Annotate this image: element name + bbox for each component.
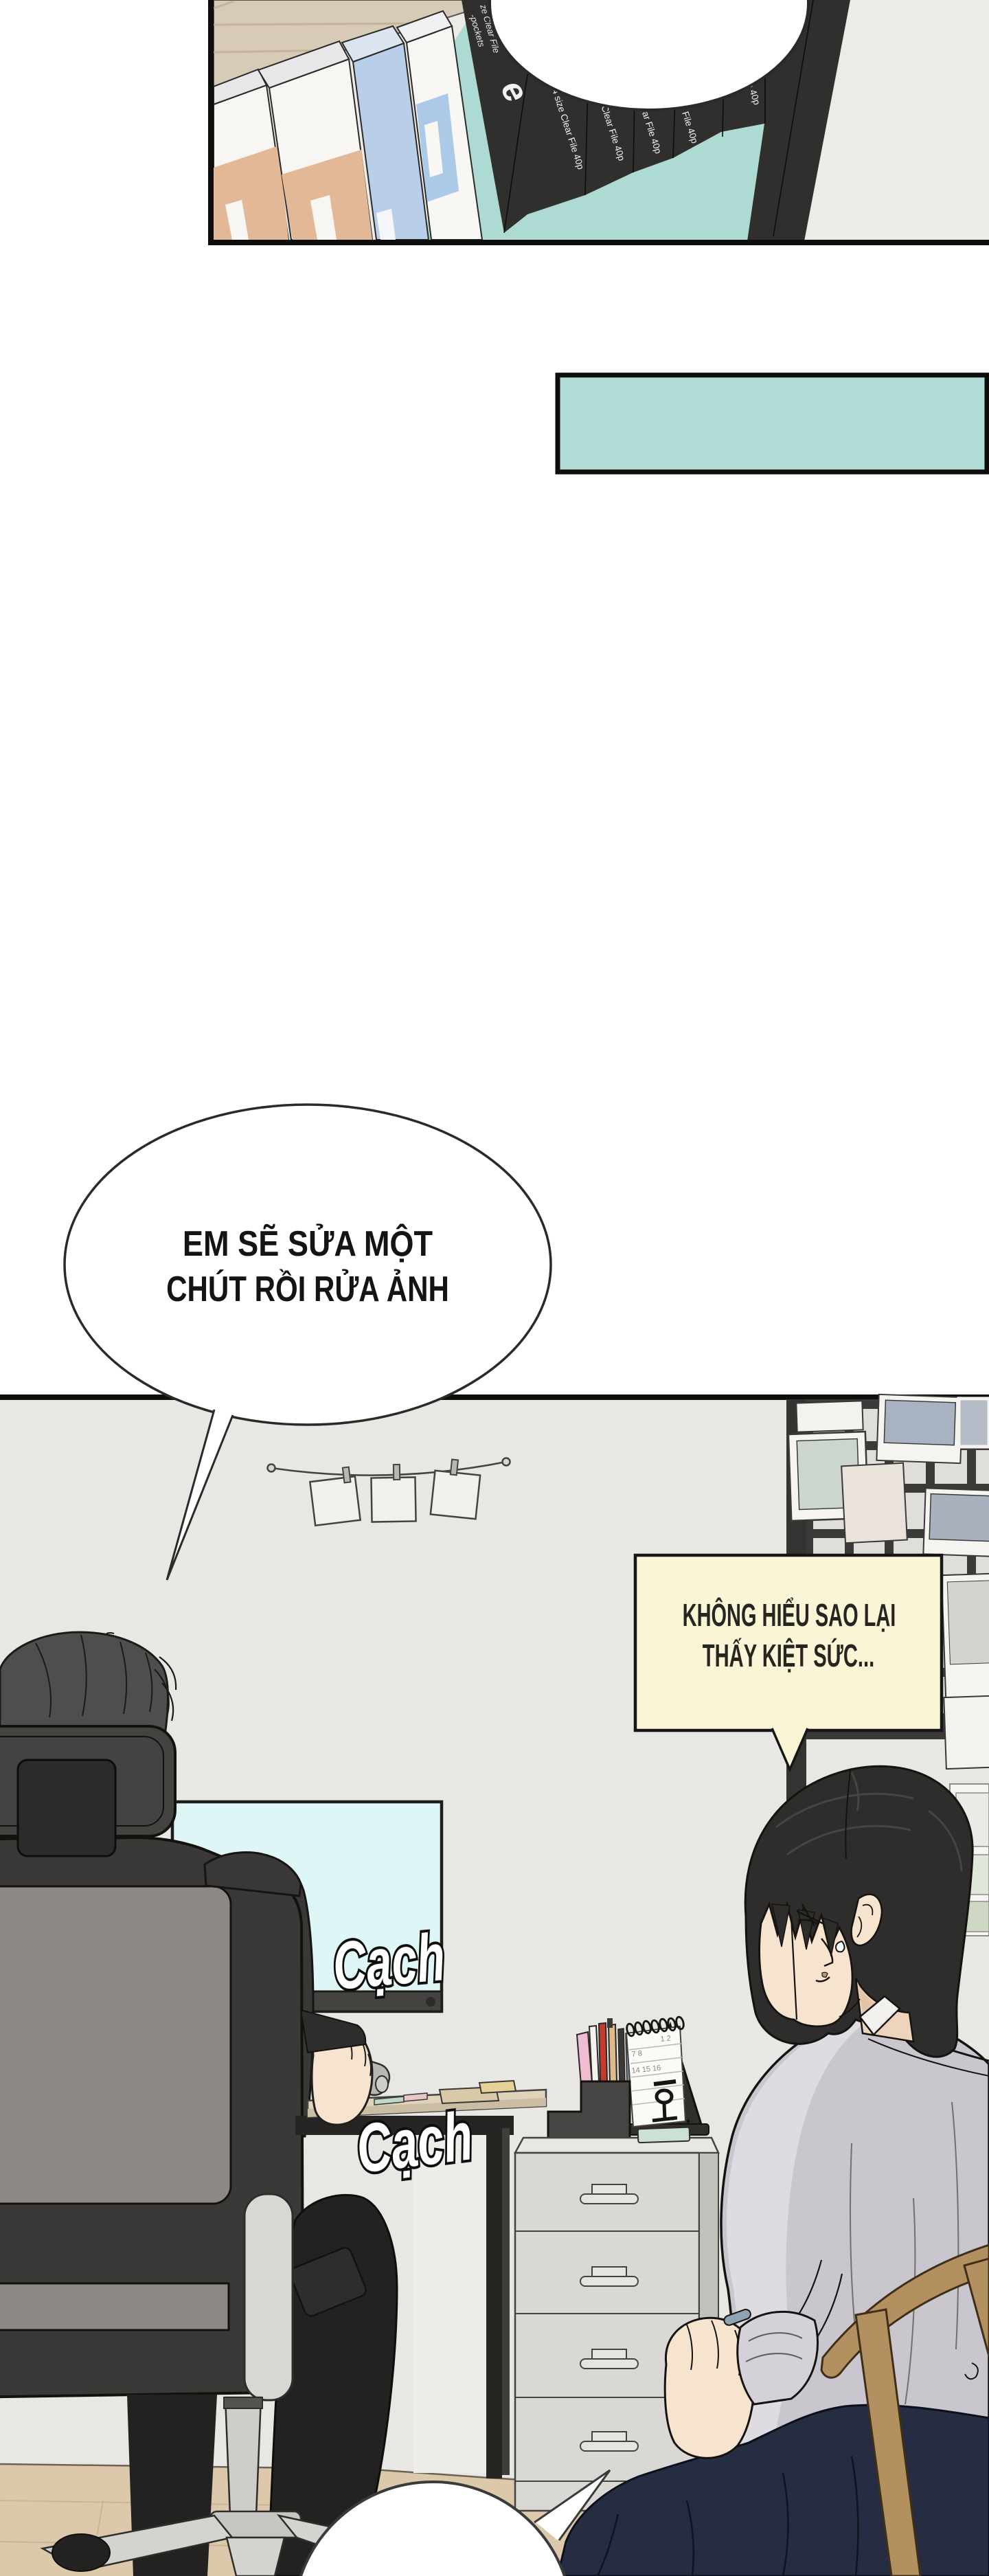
svg-text:EM SẼ SỬA MỘT: EM SẼ SỬA MỘT — [183, 1223, 433, 1264]
svg-text:Cạch: Cạch — [330, 1919, 448, 2004]
svg-text:CHÚT RỒI RỬA ẢNH: CHÚT RỒI RỬA ẢNH — [166, 1268, 449, 1309]
svg-text:THẤY KIỆT SỨC...: THẤY KIỆT SỨC... — [703, 1638, 874, 1674]
svg-text:Cạch: Cạch — [352, 2097, 477, 2187]
svg-text:7 8: 7 8 — [631, 2049, 642, 2059]
svg-text:KHÔNG HIỂU SAO LẠI: KHÔNG HIỂU SAO LẠI — [683, 1596, 896, 1634]
svg-text:1 2: 1 2 — [660, 2034, 671, 2044]
